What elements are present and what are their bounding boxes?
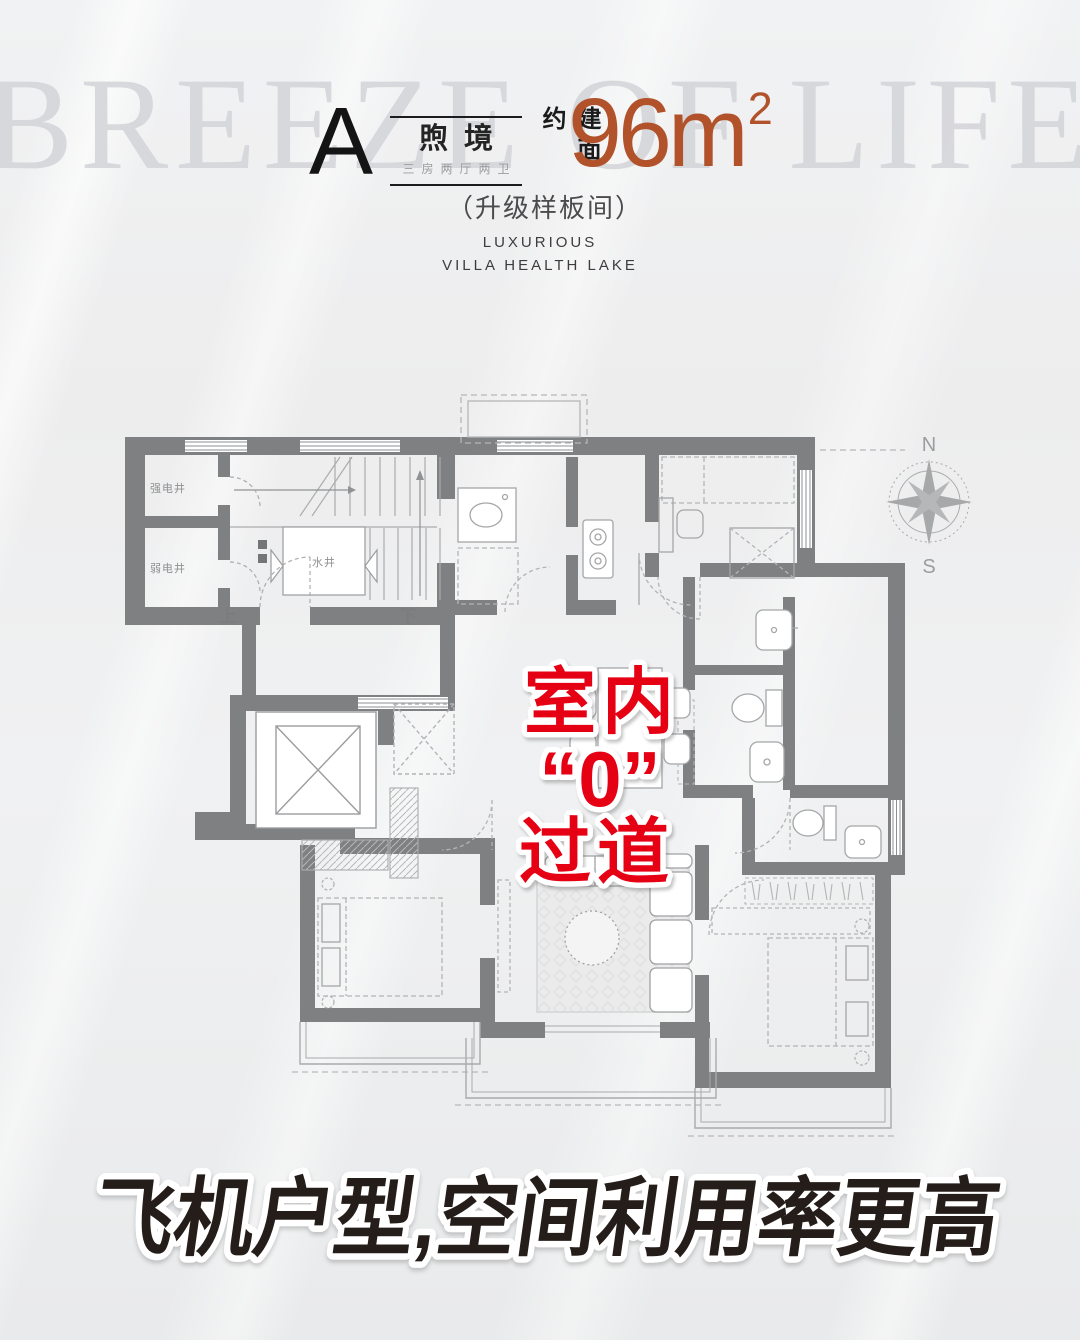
- highlight-text: 室内 “0” 过道: [519, 663, 680, 893]
- footer-slogan: 飞机户型,空间利用率更高: [87, 1171, 1005, 1267]
- label-stairs-up: 上: [220, 607, 237, 626]
- bedroom-top-right: [658, 457, 794, 619]
- highlight-line2: “0”: [539, 735, 660, 823]
- compass-north-label: N: [922, 434, 936, 456]
- footer-slogan-group: 飞机户型,空间利用率更高: [87, 1171, 1005, 1267]
- master-bedroom: [709, 880, 873, 1065]
- stair-core: [230, 457, 440, 607]
- label-strong-electric-shaft: 强电井: [150, 481, 186, 495]
- highlight-line1: 室内: [524, 663, 680, 743]
- label-water-shaft: 水井: [312, 555, 336, 569]
- compass-rose: N S: [886, 434, 972, 578]
- floor-plan: 强电井 弱电井 水井 上 下 N S 室内 “0” 过道 飞机户型,空间利用率更…: [0, 0, 1080, 1340]
- compass-south-label: S: [922, 556, 935, 578]
- label-stairs-down: 下: [400, 607, 417, 626]
- elevator-core: [256, 704, 454, 828]
- poster-page: BREEZE OF LIFE A 煦境 三房两厅两卫 建面约 96m2 （升级样…: [0, 0, 1080, 1340]
- highlight-line3: 过道: [519, 813, 675, 893]
- label-weak-electric-shaft: 弱电井: [150, 561, 186, 575]
